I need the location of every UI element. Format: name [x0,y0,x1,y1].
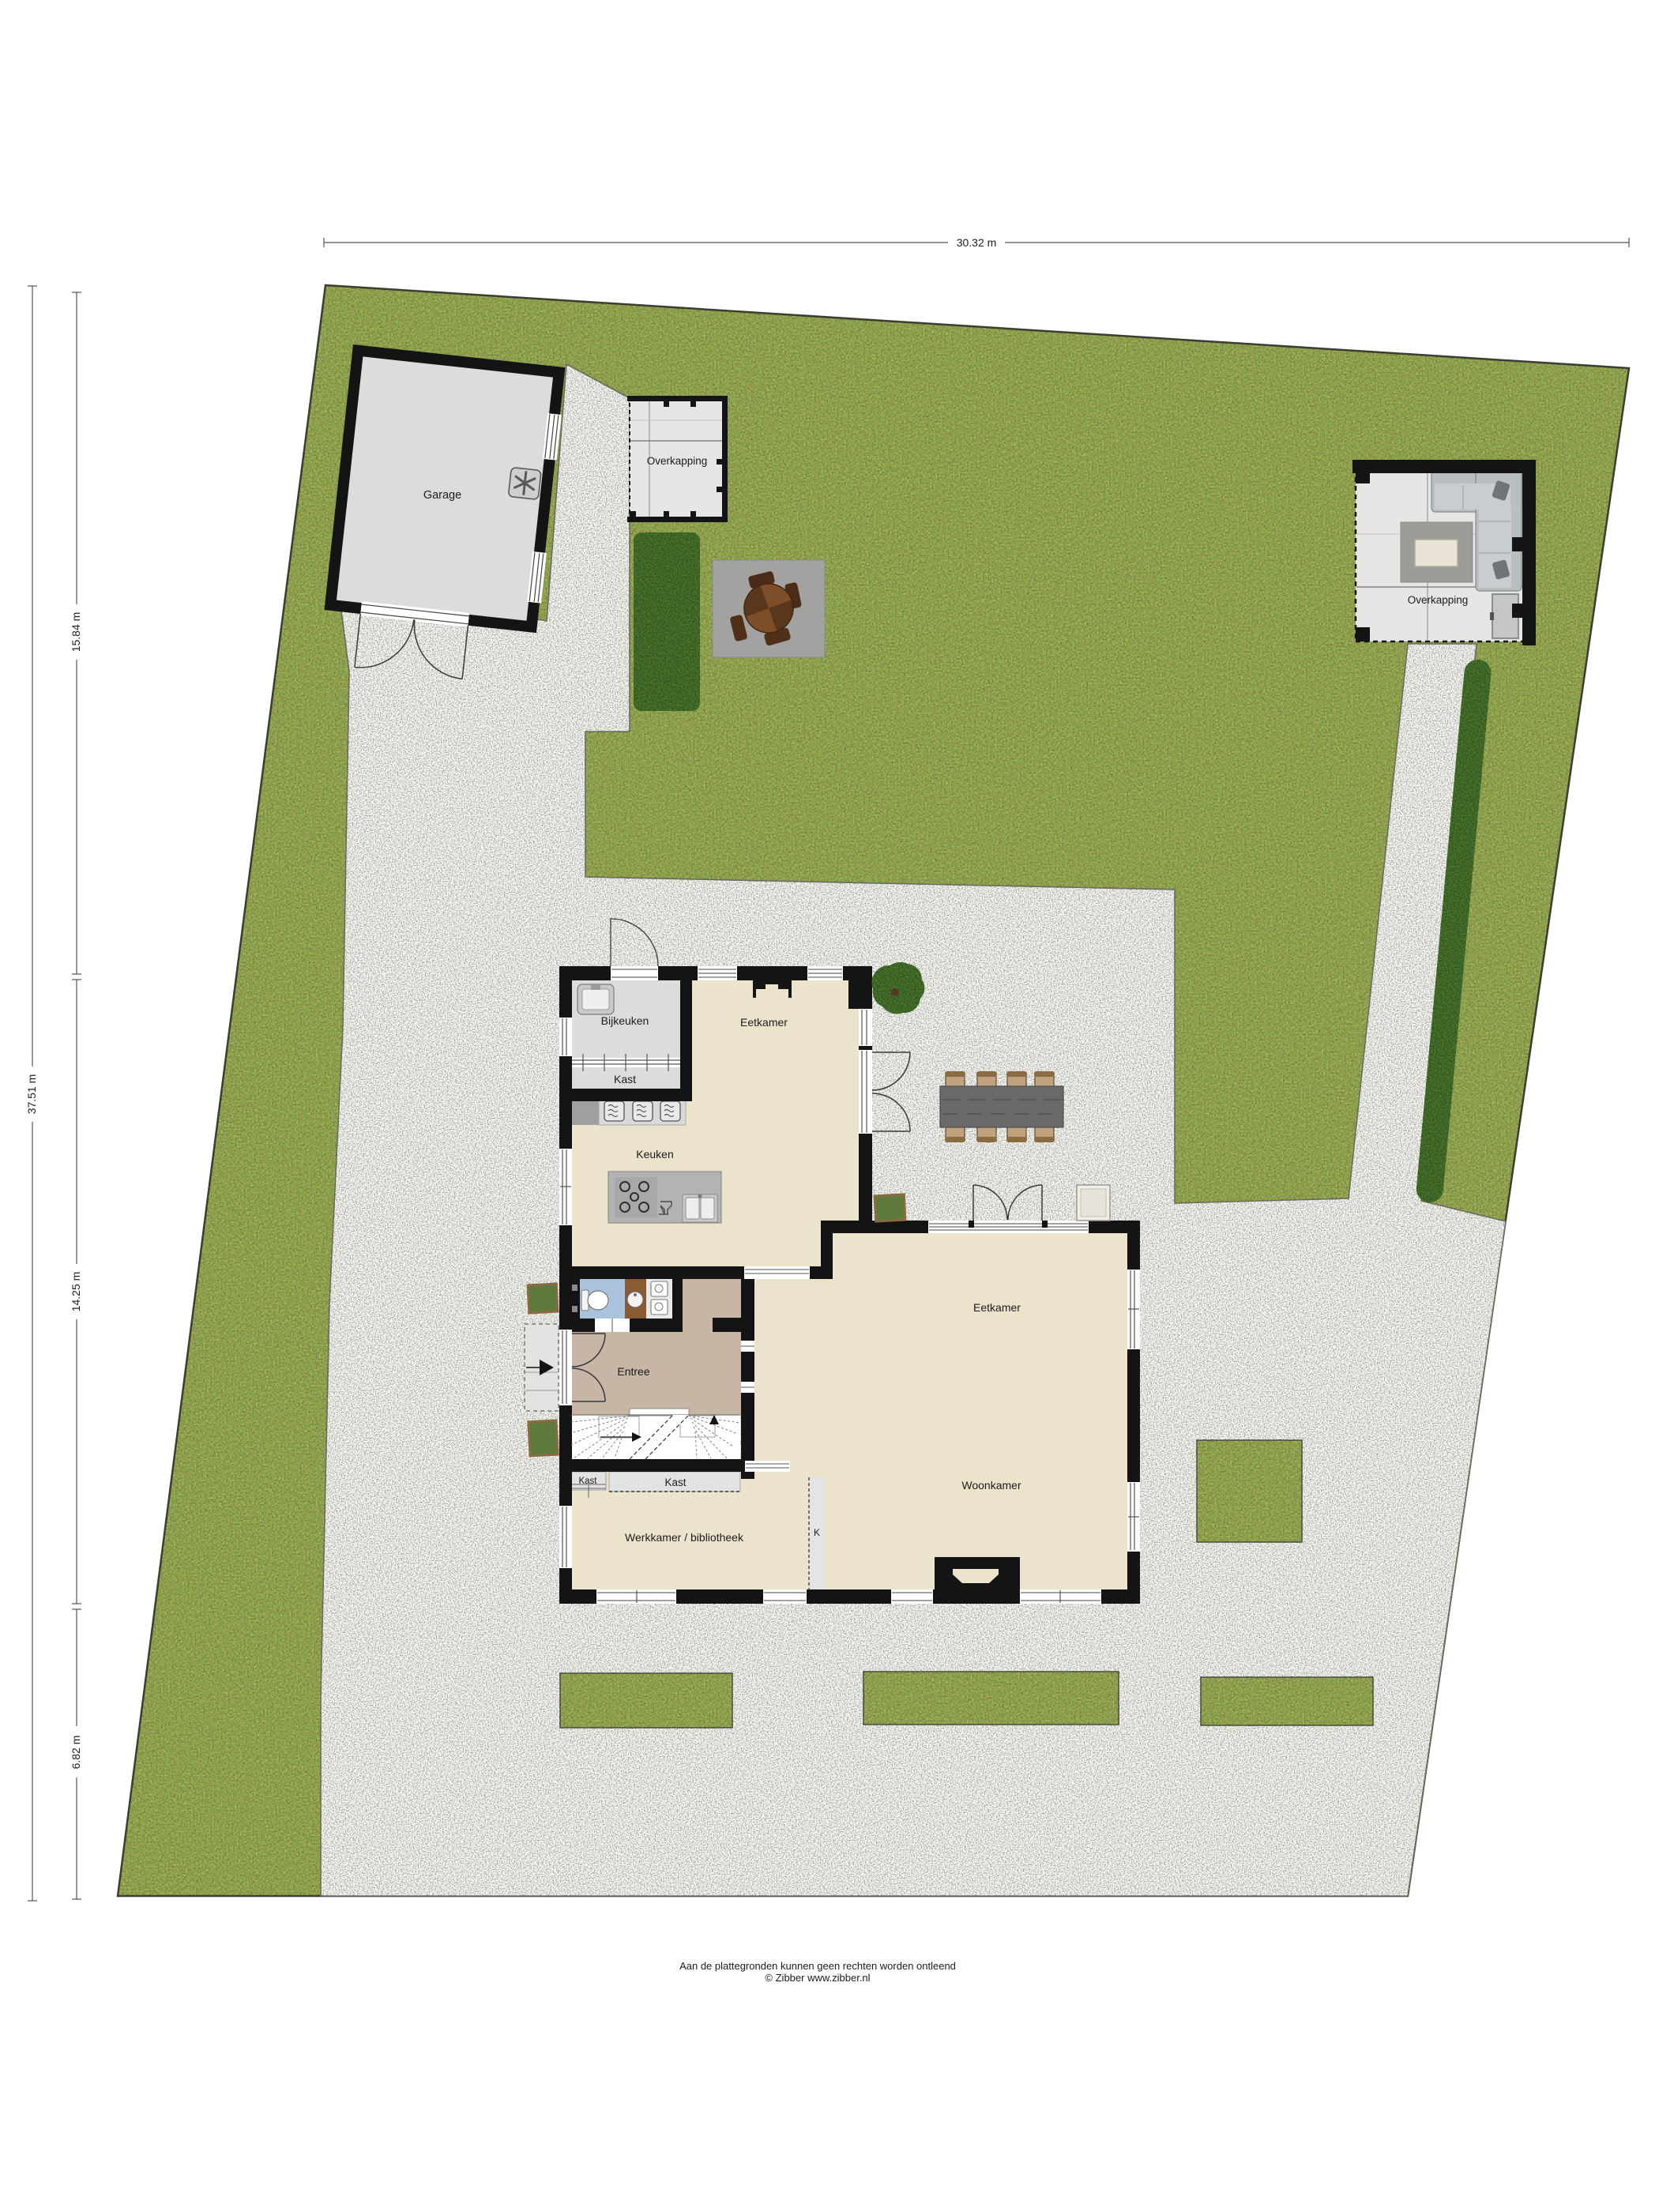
svg-text:37.51 m: 37.51 m [25,1074,38,1115]
svg-text:30.32 m: 30.32 m [957,236,997,249]
svg-text:14.25 m: 14.25 m [70,1272,82,1312]
svg-text:© Zibber www.zibber.nl: © Zibber www.zibber.nl [765,1972,870,1984]
svg-text:15.84 m: 15.84 m [70,612,82,653]
svg-text:Kast: Kast [664,1477,686,1488]
svg-text:Overkapping: Overkapping [1408,594,1469,606]
svg-text:Werkkamer / bibliotheek: Werkkamer / bibliotheek [625,1531,744,1544]
svg-text:6.82 m: 6.82 m [70,1736,82,1770]
svg-text:Aan de plattegronden kunnen ge: Aan de plattegronden kunnen geen rechten… [679,1960,956,1972]
svg-text:K: K [814,1527,820,1538]
svg-text:Overkapping: Overkapping [647,455,708,467]
svg-text:Eetkamer: Eetkamer [973,1301,1021,1314]
svg-text:Garage: Garage [423,489,461,502]
svg-text:Eetkamer: Eetkamer [740,1016,788,1029]
svg-text:Woonkamer: Woonkamer [961,1479,1021,1492]
svg-text:Keuken: Keuken [636,1148,673,1161]
svg-text:Entree: Entree [617,1365,649,1378]
svg-text:Kast: Kast [614,1073,636,1085]
svg-text:Kast: Kast [578,1477,597,1486]
svg-text:Bijkeuken: Bijkeuken [601,1014,649,1027]
